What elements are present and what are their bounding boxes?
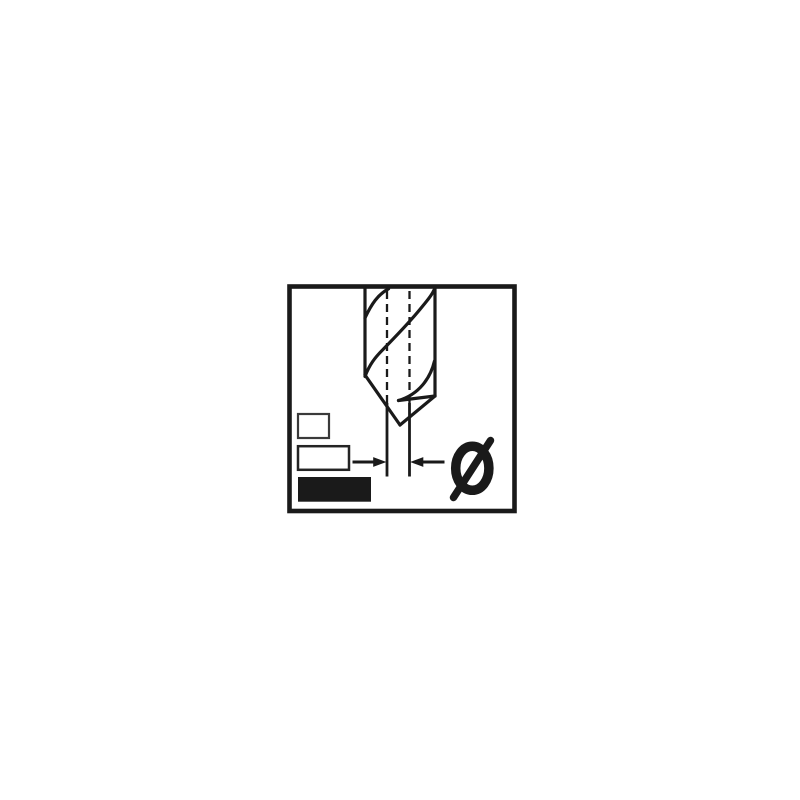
drill-diameter-pictogram: Twist drill bit shown point-down inside …: [0, 0, 800, 800]
dimension-arrows: [353, 457, 445, 467]
drill-point-left-taper: [365, 375, 400, 425]
size-box-small: [298, 414, 329, 438]
page-background: Twist drill bit shown point-down inside …: [0, 0, 800, 800]
diameter-symbol: [454, 441, 491, 498]
dimension-arrow-left-head: [373, 457, 386, 467]
size-box-large-filled: [298, 477, 371, 502]
tip-projection-dashed-lines: [387, 291, 410, 403]
drill-flute-lip-curve: [399, 361, 435, 401]
size-boxes: [298, 414, 371, 502]
drill-bit: [365, 289, 435, 425]
dimension-arrow-right-head: [410, 457, 423, 467]
drill-flute-top-hook: [365, 289, 389, 318]
size-box-medium: [298, 446, 349, 470]
